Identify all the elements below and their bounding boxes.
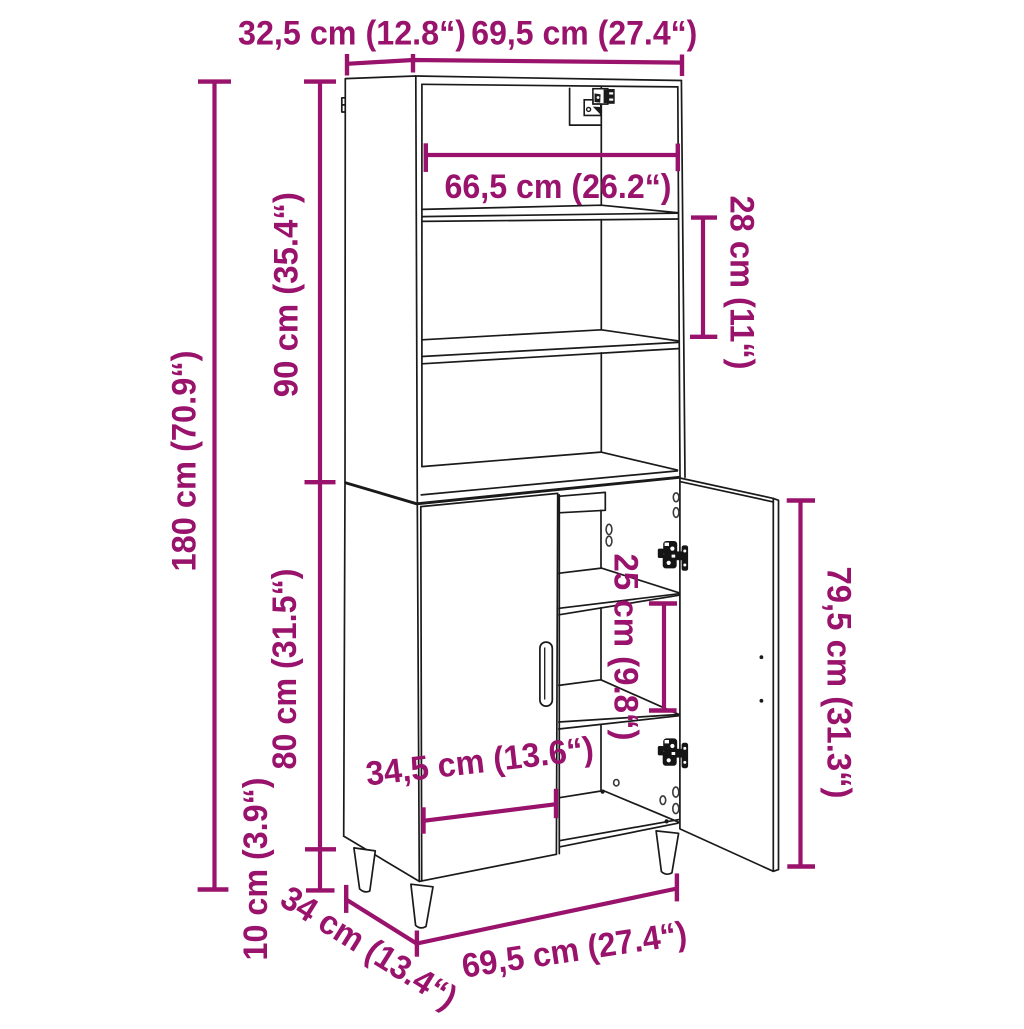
svg-text:28 cm (11“): 28 cm (11“) [723, 196, 761, 370]
svg-text:32,5 cm (12.8“): 32,5 cm (12.8“) [238, 15, 466, 53]
svg-text:66,5 cm (26.2“): 66,5 cm (26.2“) [445, 168, 672, 206]
svg-text:10 cm (3.9“): 10 cm (3.9“) [237, 778, 275, 961]
svg-text:79,5 cm (31.3“): 79,5 cm (31.3“) [820, 567, 858, 799]
svg-text:25 cm (9.8“): 25 cm (9.8“) [607, 554, 645, 741]
svg-text:80 cm (31.5“): 80 cm (31.5“) [266, 569, 304, 770]
svg-text:69,5 cm (27.4“): 69,5 cm (27.4“) [471, 15, 697, 53]
svg-text:90 cm (35.4“): 90 cm (35.4“) [267, 192, 305, 397]
svg-text:180 cm (70.9“): 180 cm (70.9“) [165, 351, 203, 572]
